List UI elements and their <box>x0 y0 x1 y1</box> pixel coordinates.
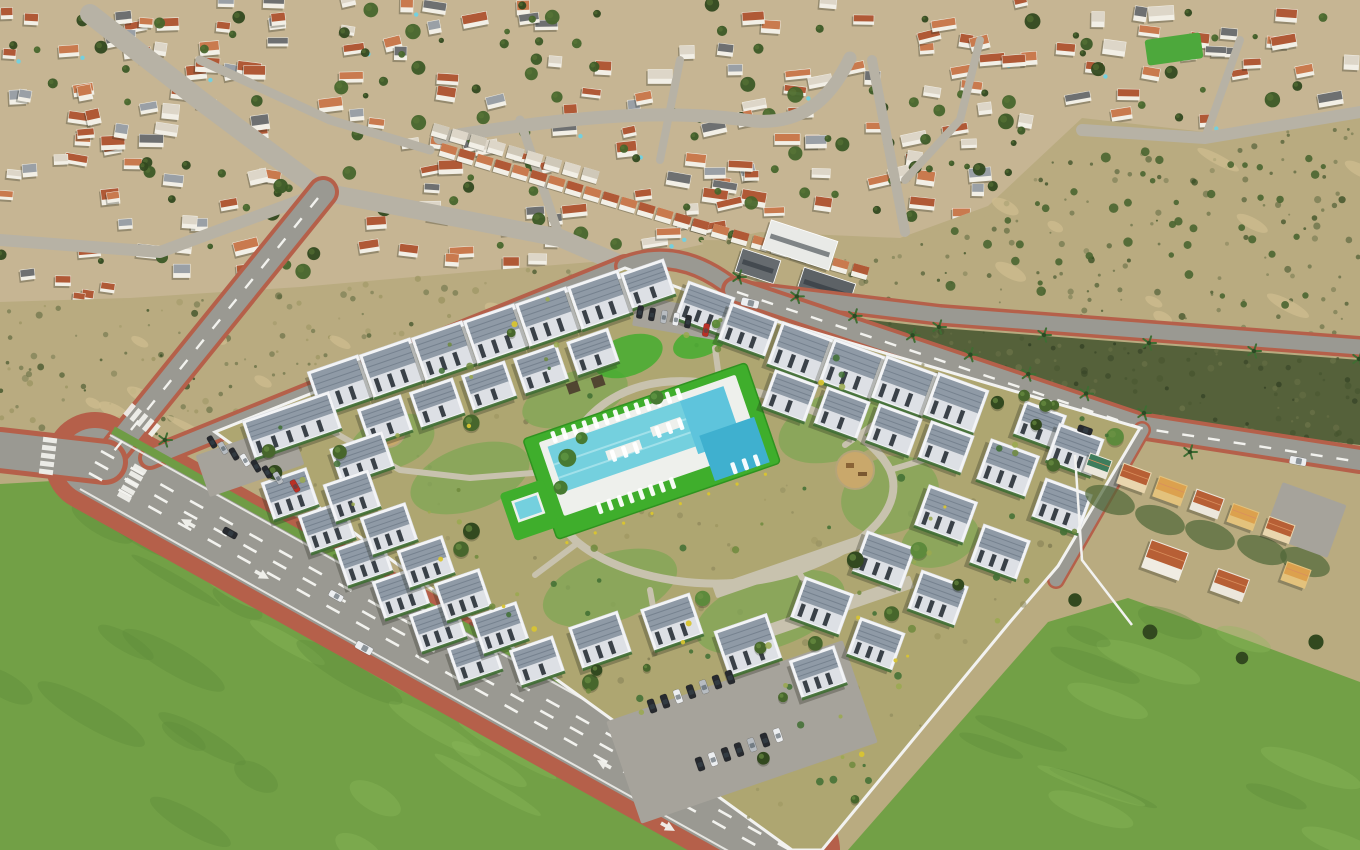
suburb-house <box>53 275 71 288</box>
tree <box>1211 34 1218 41</box>
suburb-house <box>0 7 13 21</box>
tree <box>468 174 475 181</box>
suburb-house <box>960 138 977 150</box>
tree <box>411 61 425 75</box>
tree <box>232 11 245 24</box>
suburb-house <box>434 85 457 105</box>
tree <box>218 169 226 177</box>
tree <box>825 135 832 142</box>
tree <box>251 95 263 107</box>
tree <box>909 97 919 107</box>
suburb-house <box>269 12 286 28</box>
tree <box>525 67 538 80</box>
tree <box>1138 101 1146 109</box>
tree <box>98 258 104 264</box>
tree <box>632 154 640 162</box>
tree <box>778 692 788 704</box>
suburb-house <box>425 19 442 37</box>
tree <box>1200 87 1206 93</box>
tree <box>1018 390 1030 404</box>
tree <box>754 642 766 656</box>
tree <box>690 132 698 140</box>
suburb-house <box>261 0 284 11</box>
suburb-house <box>804 135 827 151</box>
tree <box>1002 95 1016 109</box>
suburb-house <box>1203 46 1226 59</box>
suburb-house <box>852 15 875 27</box>
tree <box>593 10 601 18</box>
tree <box>952 579 964 593</box>
tree <box>788 146 802 160</box>
tree <box>472 84 481 93</box>
tree <box>463 523 480 542</box>
tree <box>34 46 41 53</box>
aerial-scene <box>0 0 1360 850</box>
suburb-house <box>160 103 181 122</box>
tree <box>771 165 779 173</box>
tree <box>873 206 881 214</box>
suburb-house <box>1131 5 1148 24</box>
tree <box>200 45 209 54</box>
playground-sand <box>836 451 874 489</box>
tree <box>620 145 628 153</box>
tree <box>808 636 823 653</box>
tree <box>1080 38 1092 50</box>
tree <box>529 186 539 196</box>
tree <box>182 161 191 170</box>
suburb-house <box>443 253 459 269</box>
tree <box>1106 428 1124 448</box>
tree <box>273 179 287 193</box>
tree <box>744 196 757 209</box>
tree <box>207 244 213 250</box>
tree <box>1080 50 1086 56</box>
suburb-house <box>976 102 993 118</box>
tree <box>449 196 458 205</box>
tree <box>981 89 988 96</box>
tree <box>518 1 526 9</box>
suburb-house <box>560 203 588 220</box>
playground-equipment <box>846 463 854 468</box>
suburb-house <box>970 183 984 198</box>
suburb-house <box>683 152 706 169</box>
tree <box>910 542 927 561</box>
tree <box>714 188 721 195</box>
tree <box>262 444 276 460</box>
tree <box>139 162 148 171</box>
aerial-photo <box>0 0 1360 850</box>
tree <box>1319 13 1328 22</box>
tree <box>998 114 1014 130</box>
suburb-house <box>726 64 743 77</box>
suburb-house <box>22 13 38 28</box>
tree <box>922 16 929 23</box>
tree <box>1005 169 1012 176</box>
tree <box>504 29 510 35</box>
suburb-house <box>715 43 734 59</box>
suburb-house <box>105 191 121 206</box>
tree <box>933 105 945 117</box>
suburb-house <box>216 0 234 9</box>
tree <box>532 212 545 225</box>
suburb-house <box>364 216 387 232</box>
suburb-house <box>52 154 68 167</box>
tree <box>295 264 310 279</box>
tree <box>124 98 131 105</box>
tree <box>717 26 727 36</box>
suburb-house <box>435 73 459 88</box>
suburb-house <box>1116 89 1140 103</box>
suburb-house <box>16 88 33 104</box>
suburb-house <box>740 11 765 28</box>
tree <box>851 795 860 806</box>
tree <box>1165 66 1178 79</box>
tree <box>799 187 810 198</box>
tree <box>545 10 560 25</box>
suburb-house <box>75 84 94 104</box>
tree <box>1091 62 1105 76</box>
tree <box>589 62 599 72</box>
tree <box>500 39 509 48</box>
suburb-house <box>546 55 562 70</box>
tree <box>1025 13 1041 29</box>
suburb-house <box>1090 11 1105 29</box>
tree <box>757 752 770 767</box>
suburb-house <box>812 196 833 215</box>
tree <box>643 664 651 674</box>
tree <box>363 3 378 18</box>
suburb-house <box>762 207 785 219</box>
suburb-house <box>1100 39 1126 59</box>
tree <box>831 191 838 198</box>
tree <box>48 78 58 88</box>
suburb-house <box>1146 5 1174 24</box>
tree <box>884 606 899 623</box>
tree <box>926 165 933 172</box>
tree <box>1265 92 1280 107</box>
suburb-house <box>18 268 36 283</box>
suburb-house <box>172 264 191 280</box>
tree <box>463 414 480 433</box>
tree <box>1292 81 1302 91</box>
suburb-house <box>75 128 95 142</box>
tree <box>405 24 420 39</box>
suburb-house <box>907 196 935 213</box>
tree <box>361 48 370 57</box>
suburb-house <box>397 243 419 260</box>
tree <box>122 65 130 73</box>
tree <box>229 31 236 38</box>
tree <box>988 181 998 191</box>
suburb-house <box>818 0 838 11</box>
tree <box>610 238 622 250</box>
tree <box>168 195 176 203</box>
tree <box>695 591 710 608</box>
suburb-house <box>20 163 38 180</box>
tree <box>1030 419 1041 432</box>
suburb-house <box>1241 58 1261 71</box>
tree <box>535 37 543 45</box>
suburb-house <box>646 69 672 86</box>
tree <box>847 551 864 570</box>
suburb-house <box>422 183 440 196</box>
tree <box>398 51 405 58</box>
tree <box>964 164 970 170</box>
suburb-house <box>266 37 288 48</box>
tree <box>342 166 356 180</box>
tree <box>683 204 690 211</box>
tree <box>740 77 755 92</box>
tree <box>1252 34 1257 39</box>
tree <box>591 664 602 677</box>
suburb-house <box>810 168 831 180</box>
tree <box>531 53 542 64</box>
tree <box>753 44 763 54</box>
tree <box>572 39 582 49</box>
playground-equipment <box>858 472 867 476</box>
tree <box>991 396 1004 411</box>
tree <box>1046 458 1060 474</box>
tree <box>9 41 17 49</box>
suburb-house <box>180 215 198 231</box>
tree <box>363 93 369 99</box>
tree <box>920 134 931 145</box>
tree <box>1017 127 1025 135</box>
suburb-house <box>5 169 23 182</box>
tree <box>1184 9 1192 17</box>
tree <box>453 541 469 559</box>
tree <box>333 445 347 461</box>
suburb-house <box>122 158 142 171</box>
tree <box>507 328 516 339</box>
suburb-house <box>137 134 163 149</box>
tree <box>339 27 350 38</box>
tree <box>949 160 955 166</box>
suburb-house <box>726 160 753 174</box>
suburb-house <box>137 17 153 30</box>
tree <box>787 87 803 103</box>
tree <box>1175 113 1183 121</box>
suburb-house <box>773 133 800 146</box>
tree <box>973 163 986 176</box>
tree <box>551 91 562 102</box>
suburb-house <box>1000 54 1026 70</box>
suburb-house <box>703 167 726 181</box>
tree <box>1039 399 1052 414</box>
tree <box>439 38 444 43</box>
tree <box>529 16 536 23</box>
suburb-house <box>348 108 365 123</box>
tree <box>154 18 165 29</box>
tree <box>243 204 250 211</box>
tree <box>816 25 824 33</box>
tree <box>334 80 348 94</box>
suburb-house <box>1054 42 1076 58</box>
suburb-house <box>116 218 133 232</box>
suburb-house <box>161 173 184 189</box>
tree <box>379 77 388 86</box>
tree <box>1073 32 1079 38</box>
tree <box>477 111 490 124</box>
suburb-house <box>112 123 129 142</box>
tree <box>497 242 504 249</box>
suburb-house <box>1274 8 1298 25</box>
tree <box>835 137 849 151</box>
suburb-house <box>527 253 547 267</box>
suburb-house <box>1342 54 1360 72</box>
tree <box>463 182 474 193</box>
tree <box>1011 140 1017 146</box>
tree <box>411 115 426 130</box>
tree <box>307 247 320 260</box>
tree <box>95 41 108 54</box>
